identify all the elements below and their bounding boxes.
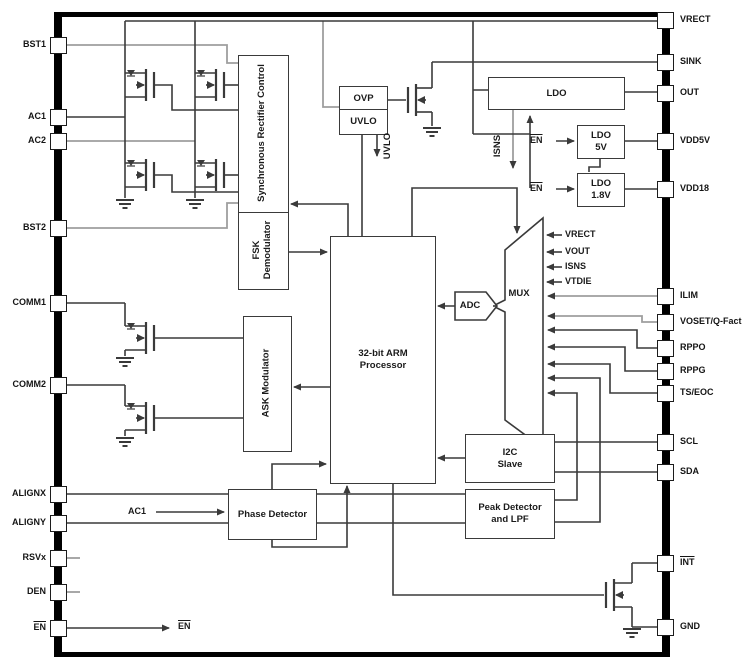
pin-label-voset-q-fact: VOSET/Q-Fact (680, 316, 742, 326)
mux-input-label-isns: ISNS (565, 261, 586, 271)
block-peak-detector: Peak Detector and LPF (465, 489, 555, 539)
block-phase-detector: Phase Detector (228, 489, 317, 540)
pin-label-int: INT (680, 557, 695, 567)
pin-label-en: EN (0, 622, 46, 632)
pin-label-rppo: RPPO (680, 342, 706, 352)
pin-sink (657, 54, 674, 71)
pin-vdd18 (657, 181, 674, 198)
pin-rppg (657, 363, 674, 380)
pin-label-comm1: COMM1 (0, 297, 46, 307)
pin-en (50, 620, 67, 637)
pin-out (657, 85, 674, 102)
ac1-signal-label: AC1 (128, 506, 146, 516)
pin-rppo (657, 340, 674, 357)
mux-input-label-vout: VOUT (565, 246, 590, 256)
pin-label-den: DEN (0, 586, 46, 596)
pin-label-aligny: ALIGNY (0, 517, 46, 527)
pin-bst1 (50, 37, 67, 54)
pin-ac2 (50, 133, 67, 150)
pin-label-bst2: BST2 (0, 222, 46, 232)
isns-signal-label: ISNS (492, 126, 504, 166)
block-ldo-5v: LDO 5V (577, 125, 625, 159)
pin-ilim (657, 288, 674, 305)
pin-label-comm2: COMM2 (0, 379, 46, 389)
pin-label-scl: SCL (680, 436, 698, 446)
block-ldo: LDO (488, 77, 625, 110)
pin-label-out: OUT (680, 87, 699, 97)
block-uvlo: UVLO (339, 109, 388, 135)
pin-comm1 (50, 295, 67, 312)
pin-label-sink: SINK (680, 56, 702, 66)
pin-label-bst1: BST1 (0, 39, 46, 49)
pin-scl (657, 434, 674, 451)
pin-sda (657, 464, 674, 481)
pin-vdd5v (657, 133, 674, 150)
block-ldo-1v8: LDO 1.8V (577, 173, 625, 207)
en-ldo5v-label: EN (530, 135, 543, 145)
pin-ac1 (50, 109, 67, 126)
block-ovp: OVP (339, 86, 388, 111)
mux-shape (493, 218, 543, 448)
block-diagram: Synchronous Rectifier Control FSK Demodu… (0, 0, 746, 664)
mux-input-label-vtdie: VTDIE (565, 276, 592, 286)
pin-int (657, 555, 674, 572)
uvlo-signal-label: UVLO (382, 126, 394, 166)
block-i2c-slave: I2C Slave (465, 434, 555, 483)
pin-ts-eoc (657, 385, 674, 402)
pin-label-vdd18: VDD18 (680, 183, 709, 193)
en-internal-label: EN (178, 621, 191, 631)
en-ldo1v8-label: EN (530, 183, 543, 193)
mux-label: MUX (498, 288, 540, 299)
block-ask-label: ASK Modulator (260, 323, 274, 444)
pin-label-vrect: VRECT (680, 14, 711, 24)
pin-bst2 (50, 220, 67, 237)
pin-label-ilim: ILIM (680, 290, 698, 300)
pin-label-ts-eoc: TS/EOC (680, 387, 714, 397)
pin-gnd (657, 619, 674, 636)
pin-label-ac2: AC2 (0, 135, 46, 145)
pin-voset-q-fact (657, 314, 674, 331)
pin-label-alignx: ALIGNX (0, 488, 46, 498)
mux-input-label-vrect: VRECT (565, 229, 596, 239)
pin-aligny (50, 515, 67, 532)
pin-vrect (657, 12, 674, 29)
block-sync-rect-control: Synchronous Rectifier Control (255, 58, 269, 208)
pin-comm2 (50, 377, 67, 394)
pin-label-rppg: RPPG (680, 365, 706, 375)
pin-label-rsvx: RSVx (0, 552, 46, 562)
pin-label-vdd5v: VDD5V (680, 135, 710, 145)
block-fsk-label: FSK Demodulator (252, 204, 274, 296)
pin-label-sda: SDA (680, 466, 699, 476)
block-arm-processor: 32-bit ARM Processor (330, 236, 436, 484)
pin-rsvx (50, 550, 67, 567)
pin-label-gnd: GND (680, 621, 700, 631)
adc-label: ADC (450, 300, 490, 311)
pin-label-ac1: AC1 (0, 111, 46, 121)
pin-alignx (50, 486, 67, 503)
pin-den (50, 584, 67, 601)
